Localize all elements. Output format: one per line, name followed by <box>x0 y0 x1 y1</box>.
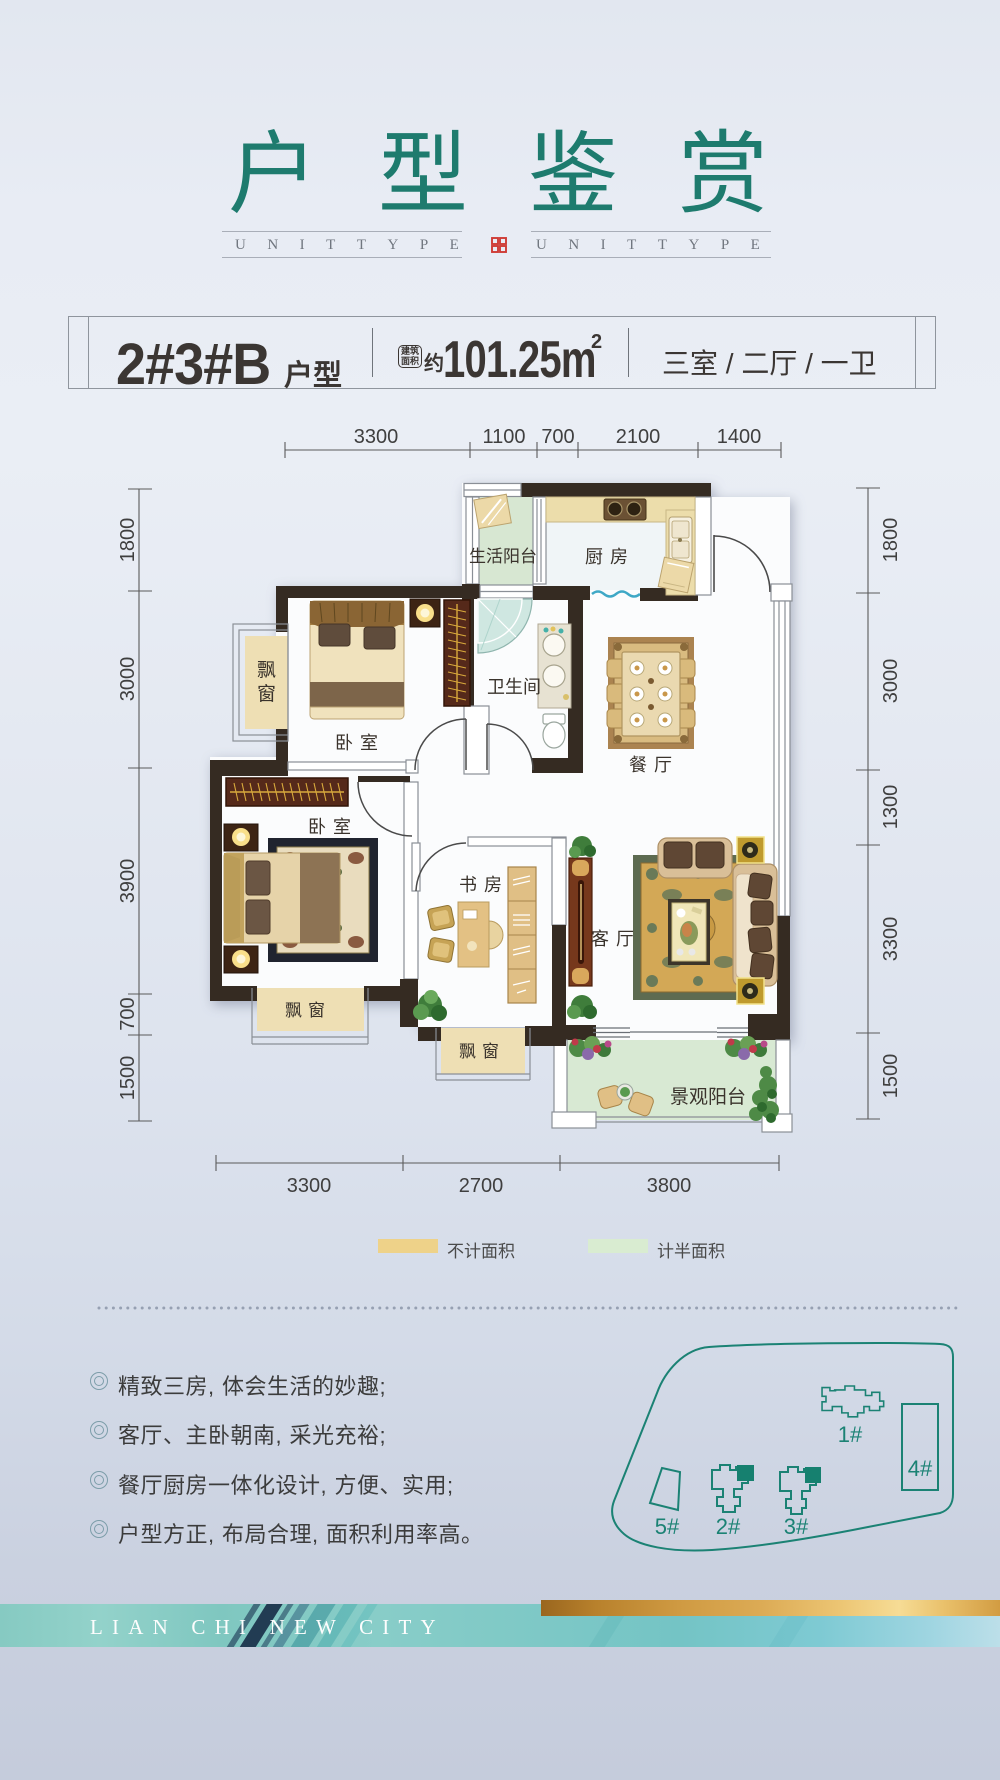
svg-text:3000: 3000 <box>117 657 139 702</box>
svg-text:1500: 1500 <box>117 1056 139 1101</box>
svg-text:1400: 1400 <box>717 426 762 448</box>
svg-text:1500: 1500 <box>880 1054 902 1099</box>
svg-text:5#: 5# <box>655 1514 680 1539</box>
svg-text:3300: 3300 <box>880 917 902 962</box>
svg-text:2700: 2700 <box>459 1175 504 1197</box>
svg-text:700: 700 <box>541 426 574 448</box>
svg-text:3300: 3300 <box>287 1175 332 1197</box>
svg-text:1100: 1100 <box>482 426 525 448</box>
svg-text:飘窗: 飘窗 <box>459 1042 505 1061</box>
svg-text:客厅: 客厅 <box>591 929 641 949</box>
svg-text:1800: 1800 <box>117 518 139 563</box>
svg-text:3900: 3900 <box>117 859 139 904</box>
svg-text:飘: 飘 <box>257 660 276 681</box>
svg-text:3800: 3800 <box>647 1175 692 1197</box>
svg-text:3300: 3300 <box>354 426 399 448</box>
svg-text:卫生间: 卫生间 <box>487 677 541 697</box>
svg-text:700: 700 <box>117 997 139 1030</box>
svg-text:厨房: 厨房 <box>585 547 635 567</box>
svg-text:书房: 书房 <box>459 875 509 895</box>
svg-text:1300: 1300 <box>880 785 902 830</box>
svg-text:飘窗: 飘窗 <box>285 1001 331 1020</box>
svg-text:3000: 3000 <box>880 659 902 704</box>
svg-text:2#: 2# <box>716 1514 741 1539</box>
svg-text:3#: 3# <box>784 1514 809 1539</box>
svg-text:卧室: 卧室 <box>335 733 385 753</box>
svg-text:景观阳台: 景观阳台 <box>670 1086 746 1108</box>
svg-text:窗: 窗 <box>257 683 276 705</box>
svg-text:1800: 1800 <box>880 518 902 563</box>
svg-text:2100: 2100 <box>616 426 661 448</box>
svg-text:4#: 4# <box>908 1456 933 1481</box>
svg-text:餐厅: 餐厅 <box>629 755 679 775</box>
svg-text:1#: 1# <box>838 1422 863 1447</box>
svg-text:卧室: 卧室 <box>308 817 358 837</box>
svg-text:生活阳台: 生活阳台 <box>469 547 537 566</box>
